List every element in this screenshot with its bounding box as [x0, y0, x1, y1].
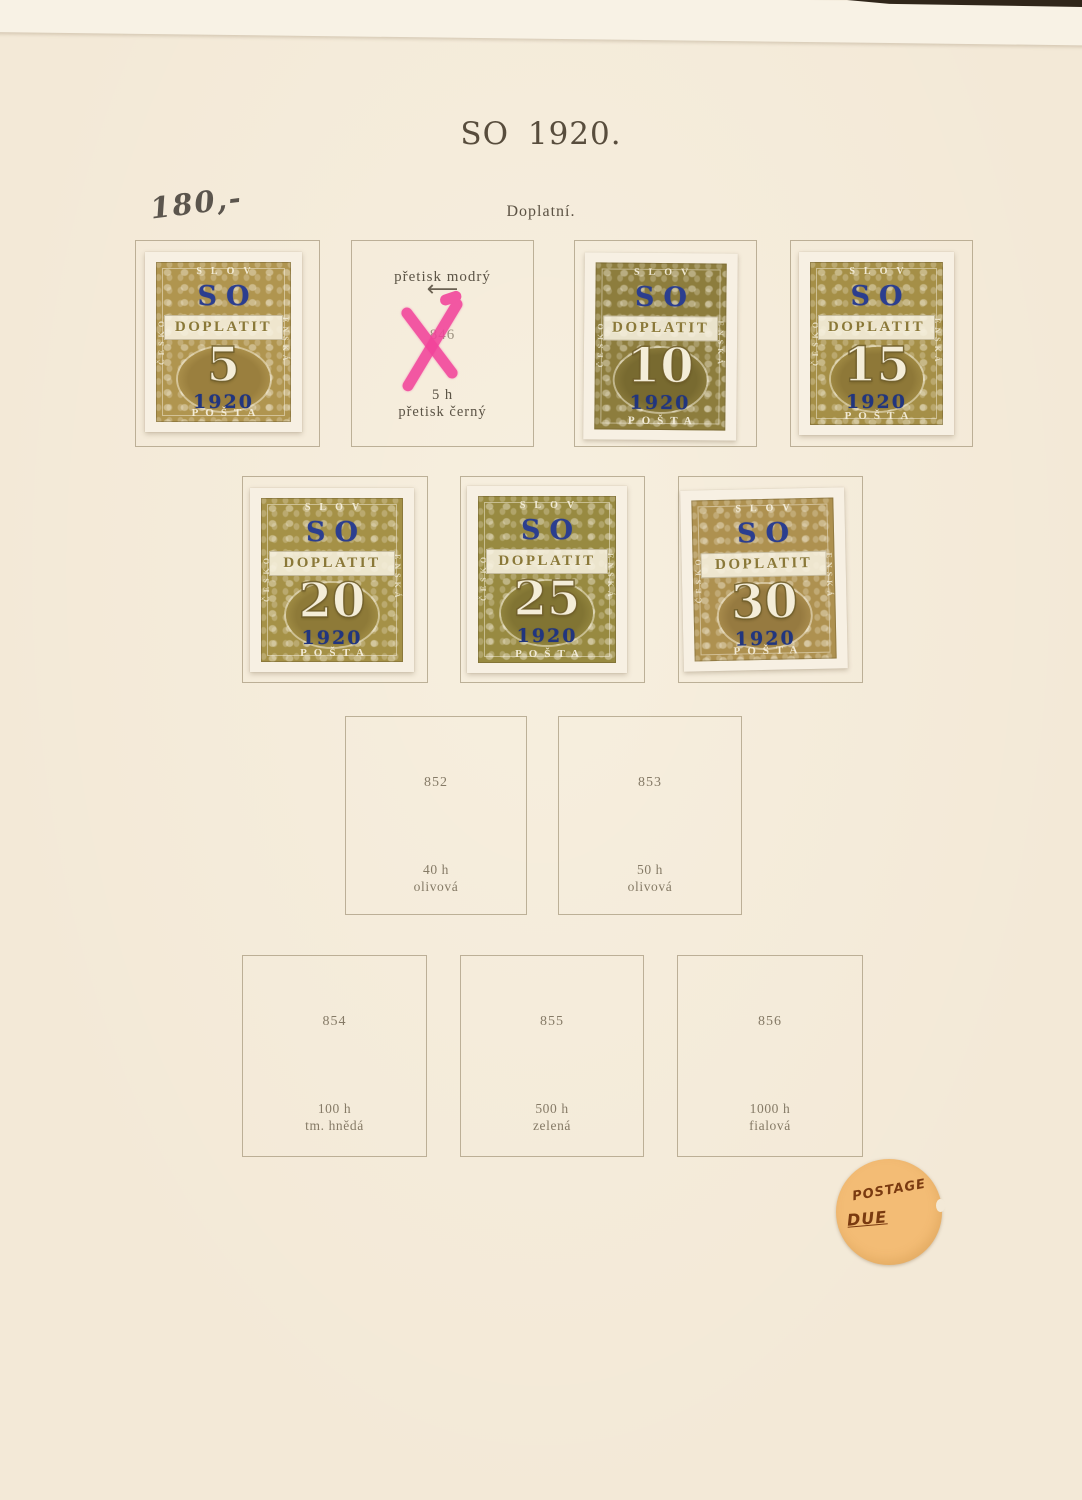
placeholder-caption: 100 h tm. hnědá [243, 1100, 426, 1134]
stamp-label: DOPLATIT [612, 320, 709, 338]
stamp-so-overprint: SO [157, 281, 290, 312]
stamp-year-overprint: 1920 [595, 391, 724, 414]
stamp-top-text: SLOV [597, 266, 726, 278]
stamp-mount: SLOV ČESKO ENSKÁ SO DOPLATIT 20 1920 POŠ… [250, 488, 414, 672]
stamp-mount: SLOV ČESKO ENSKÁ SO DOPLATIT 30 1920 POŠ… [680, 487, 848, 671]
color-name: fialová [678, 1117, 862, 1134]
stamp-year-overprint: 1920 [479, 625, 615, 647]
stamp-so-overprint: SO [479, 515, 615, 546]
stamp-top-text: SLOV [157, 266, 290, 277]
catalog-number: 854 [243, 1014, 426, 1030]
stamp-value: 30 [694, 573, 835, 632]
stamp-30h: SLOV ČESKO ENSKÁ SO DOPLATIT 30 1920 POŠ… [691, 498, 836, 662]
stamp-top-text: SLOV [262, 502, 402, 513]
stamp-value: 15 [811, 337, 942, 393]
stamp-mount: SLOV ČESKO ENSKÁ SO DOPLATIT 25 1920 POŠ… [467, 486, 627, 673]
placeholder-caption: 50 h olivová [559, 861, 741, 895]
stamp-label: DOPLATIT [715, 555, 813, 574]
stamp-so-overprint: SO [596, 281, 725, 313]
denomination: 100 h [243, 1100, 426, 1117]
placeholder-box-856: 856 1000 h fialová [677, 955, 863, 1157]
stamp-value: 10 [596, 337, 725, 394]
catalog-number: 852 [346, 775, 526, 791]
denomination: 1000 h [678, 1100, 862, 1117]
stamp-top-text: SLOV [479, 500, 615, 511]
stamp-value: 5 [157, 337, 290, 393]
denomination: 50 h [559, 861, 741, 878]
stamp-bottom-text: POŠTA [811, 410, 942, 422]
x-mark [394, 296, 468, 396]
placeholder-box-853: 853 50 h olivová [558, 716, 742, 915]
sticker-text-line1: POSTAGE [851, 1177, 927, 1205]
page-title: SO 1920. [0, 116, 1082, 152]
stamp-bottom-text: POŠTA [157, 407, 290, 419]
postage-due-sticker: POSTAGE DUE [836, 1159, 942, 1265]
stamp-bottom-text: POŠTA [695, 644, 835, 659]
stamp-so-overprint: SO [693, 517, 834, 551]
stamp-year-overprint: 1920 [262, 627, 402, 649]
page-top-edge [0, 0, 1082, 46]
catalog-number: 856 [678, 1014, 862, 1030]
stamp-label: DOPLATIT [283, 555, 380, 572]
catalog-number: 855 [461, 1014, 643, 1030]
placeholder-box-854: 854 100 h tm. hnědá [242, 955, 427, 1157]
color-name: zelená [461, 1117, 643, 1134]
color-name: tm. hnědá [243, 1117, 426, 1134]
stamp-20h: SLOV ČESKO ENSKÁ SO DOPLATIT 20 1920 POŠ… [261, 498, 403, 662]
overprint-black-note: přetisk černý [352, 404, 533, 421]
stamp-label: DOPLATIT [828, 319, 925, 336]
stamp-bottom-text: POŠTA [262, 647, 402, 659]
stamp-top-text: SLOV [811, 266, 942, 277]
placeholder-box-852: 852 40 h olivová [345, 716, 527, 915]
color-name: olivová [559, 878, 741, 895]
placeholder-caption: 500 h zelená [461, 1100, 643, 1134]
stamp-so-overprint: SO [262, 517, 402, 548]
stamp-bottom-text: POŠTA [595, 414, 724, 427]
color-name: olivová [346, 878, 526, 895]
stamp-15h: SLOV ČESKO ENSKÁ SO DOPLATIT 15 1920 POŠ… [810, 262, 943, 425]
placeholder-box-855: 855 500 h zelená [460, 955, 644, 1157]
stamp-mount: SLOV ČESKO ENSKÁ SO DOPLATIT 15 1920 POŠ… [799, 252, 954, 435]
stamp-so-overprint: SO [811, 281, 942, 312]
sticker-text-line2: DUE [846, 1207, 888, 1229]
stamp-mount: SLOV ČESKO ENSKÁ SO DOPLATIT 10 1920 POŠ… [583, 252, 738, 440]
stamp-top-text: SLOV [692, 502, 832, 516]
stamp-5h: SLOV ČESKO ENSKÁ SO DOPLATIT 5 1920 POŠT… [156, 262, 291, 422]
placeholder-caption: 1000 h fialová [678, 1100, 862, 1134]
stamp-bottom-text: POŠTA [479, 648, 615, 660]
stamp-value: 25 [479, 571, 615, 627]
denomination: 40 h [346, 861, 526, 878]
stamp-25h: SLOV ČESKO ENSKÁ SO DOPLATIT 25 1920 POŠ… [478, 496, 616, 663]
sticker-tear-nick [936, 1199, 945, 1212]
stamp-value: 20 [262, 573, 402, 629]
album-page-photo: SO 1920. Doplatní. 180,- přetisk modrý ⟵… [0, 0, 1082, 1500]
catalog-number: 853 [559, 775, 741, 791]
stamp-label: DOPLATIT [175, 319, 272, 336]
stamp-10h: SLOV ČESKO ENSKÁ SO DOPLATIT 10 1920 POŠ… [594, 262, 726, 430]
denomination: 500 h [461, 1100, 643, 1117]
stamp-label: DOPLATIT [498, 553, 595, 570]
placeholder-caption: 40 h olivová [346, 861, 526, 895]
stamp-mount: SLOV ČESKO ENSKÁ SO DOPLATIT 5 1920 POŠT… [145, 252, 302, 432]
